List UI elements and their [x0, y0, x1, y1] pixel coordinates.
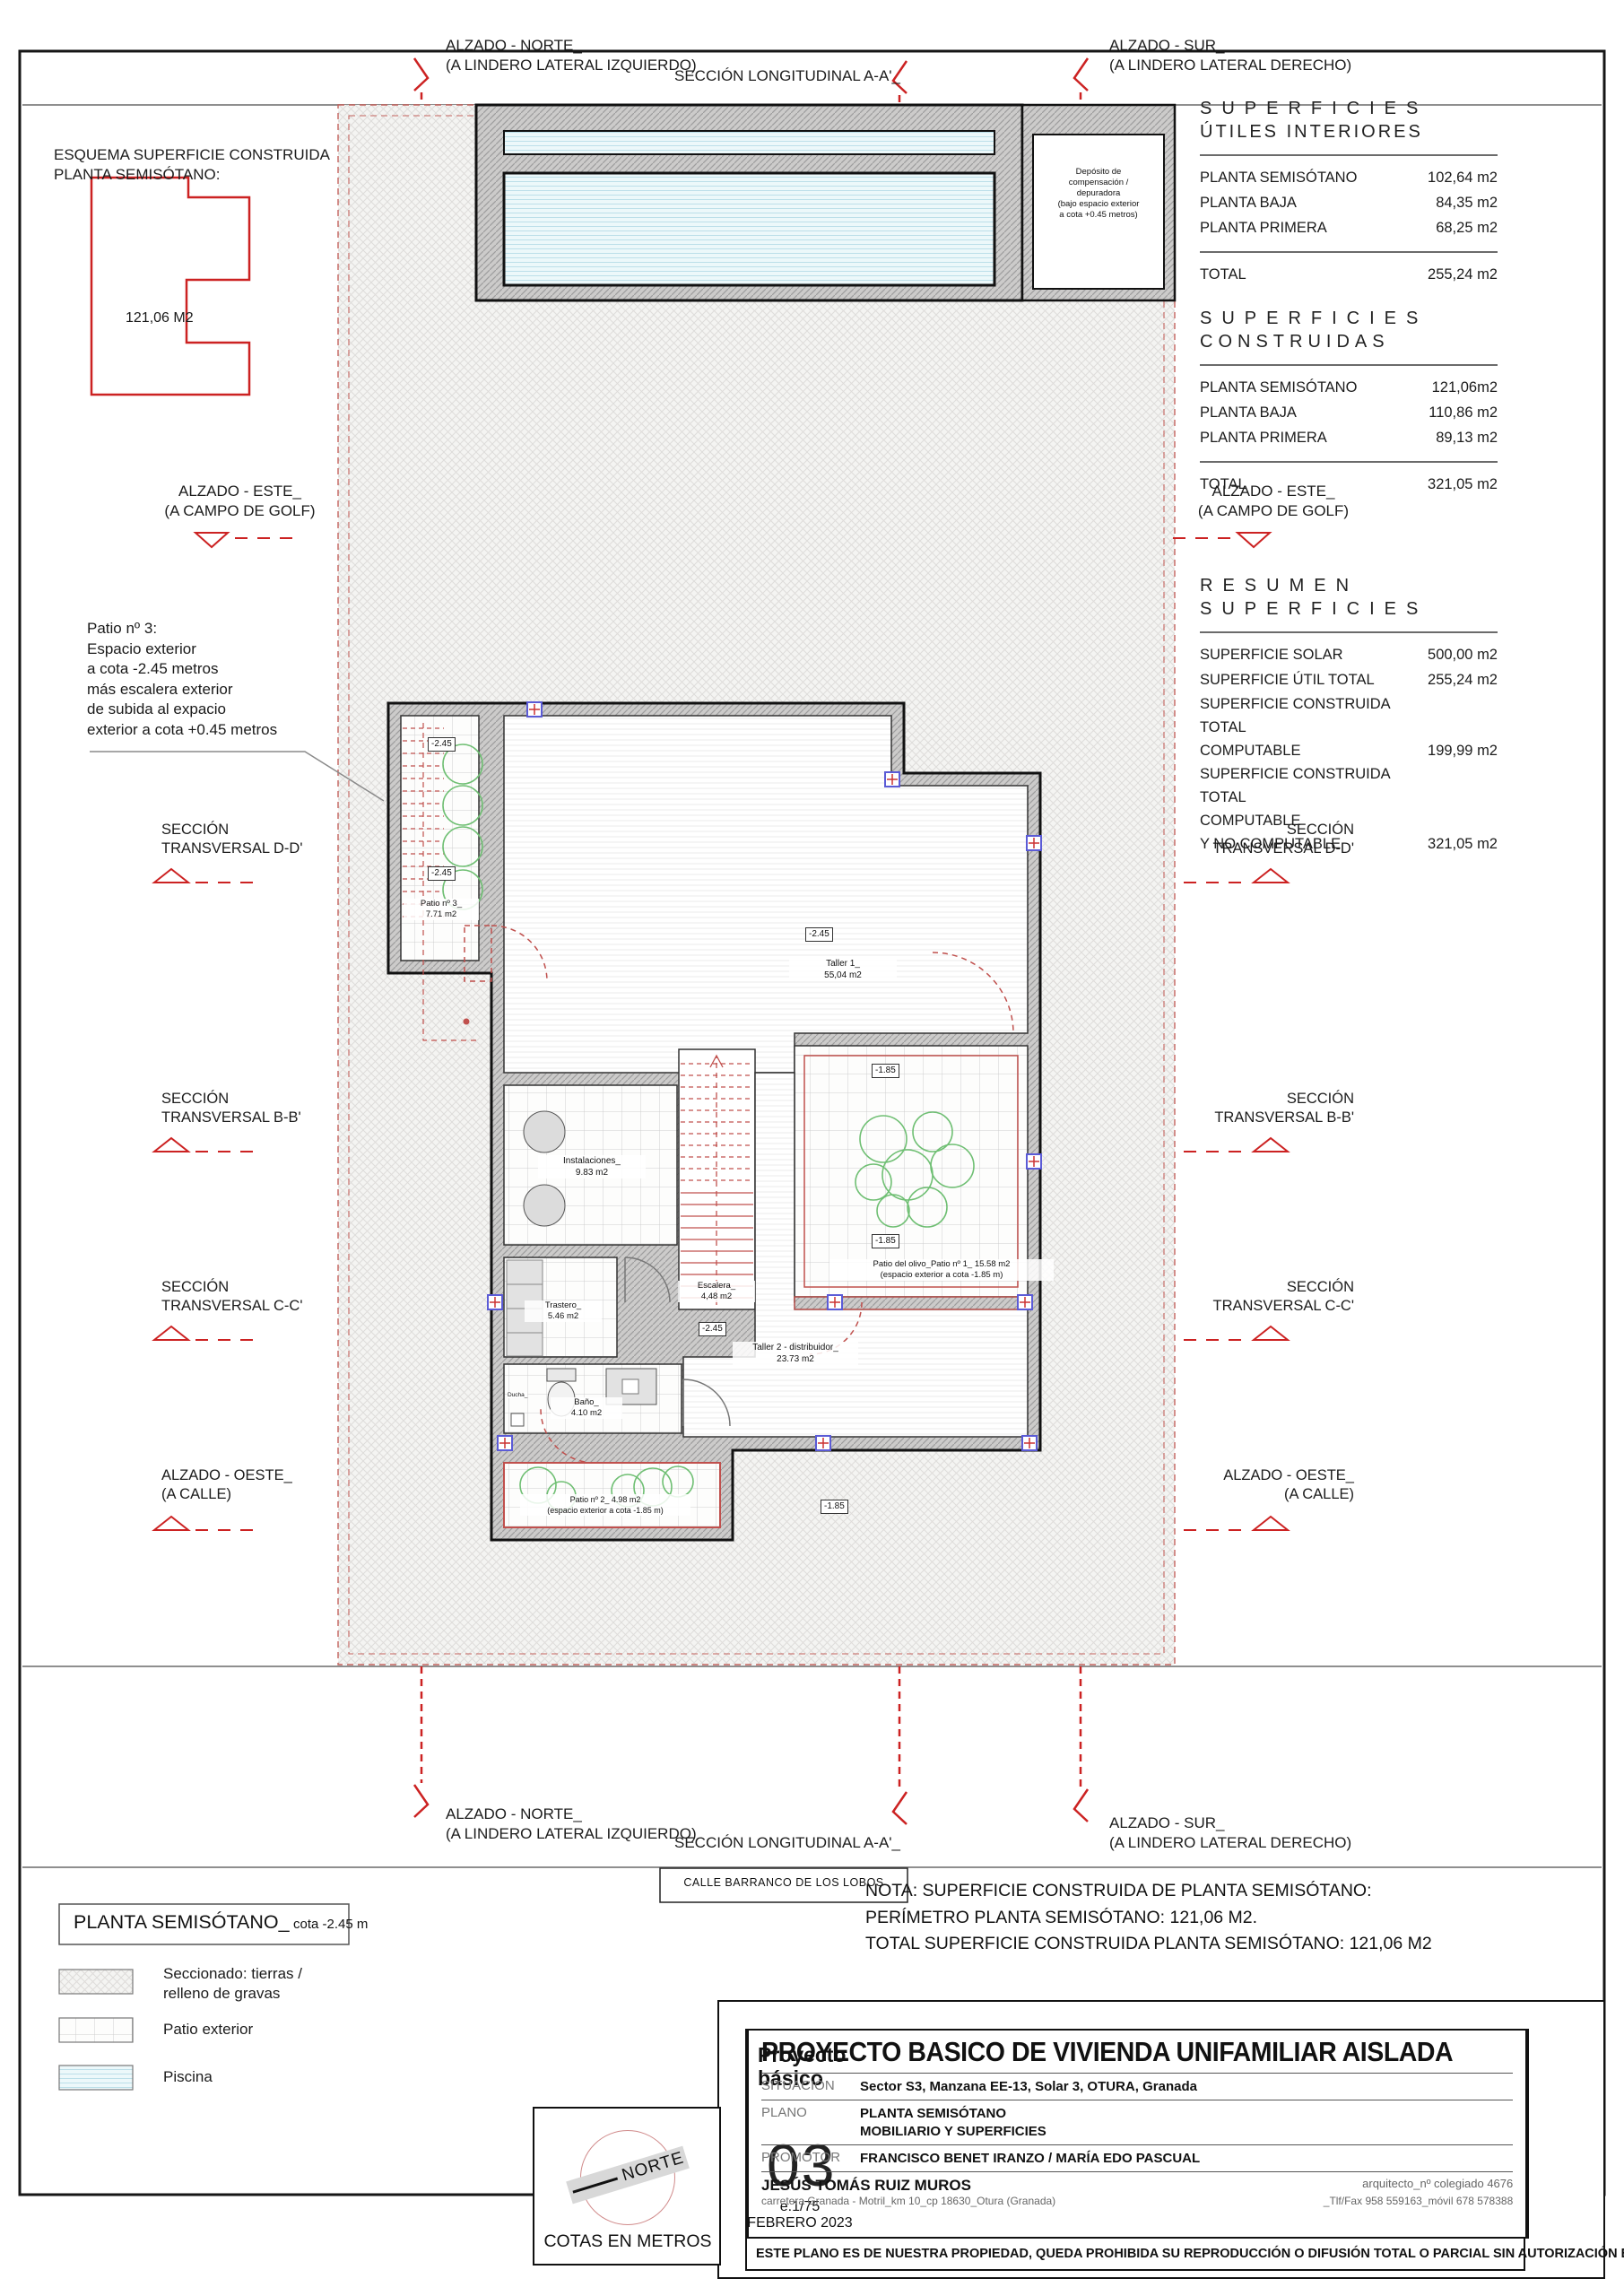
alzado-sur-line2: (A LINDERO LATERAL DERECHO) — [1109, 56, 1351, 75]
seccion-aa-label-bottom: SECCIÓN LONGITUDINAL A-A'_ — [674, 1833, 900, 1853]
legend-swatches — [59, 1970, 133, 2090]
room-patio3 — [401, 716, 479, 961]
copyright-strip: ESTE PLANO ES DE NUESTRA PROPIEDAD, QUED… — [745, 2239, 1525, 2271]
alzado-norte-line1: ALZADO - NORTE_ — [446, 36, 697, 56]
seccion-bb-label-left: SECCIÓN TRANSVERSAL B-B' — [161, 1090, 301, 1127]
logo-a-glyph: a — [1525, 2042, 1527, 2127]
nota: NOTA: SUPERFICIE CONSTRUIDA DE PLANTA SE… — [865, 1878, 1432, 1958]
alzado-sur-line1: ALZADO - SUR_ — [1109, 36, 1351, 56]
esquema-title: ESQUEMA SUPERFICIE CONSTRUIDA PLANTA SEM… — [54, 145, 330, 185]
tank-2 — [524, 1185, 565, 1226]
table2-title: SUPERFICIES — [1200, 307, 1498, 330]
rm-arquitectos-logo: a RM RUIZ MUROS arquitectos — [1525, 2031, 1527, 2237]
escalera-label: Escalera_ 4,48 m2 — [678, 1281, 755, 1302]
legend-title: PLANTA SEMISÓTANO_ cota -2.45 m — [74, 1911, 368, 1934]
shower-drain — [511, 1413, 524, 1426]
drawing-sheet: ALZADO - NORTE_ (A LINDERO LATERAL IZQUI… — [0, 0, 1624, 2296]
table-row: PLANTA PRIMERA68,25 m2 — [1200, 215, 1498, 240]
table-total-row: TOTAL255,24 m2 — [1200, 262, 1498, 287]
seccion-cc-label-right: SECCIÓN TRANSVERSAL C-C' — [1193, 1278, 1354, 1316]
table3-title: RESUMEN — [1200, 574, 1498, 597]
taller2-label: Taller 2 - distribuidor_ 23.73 m2 — [733, 1342, 858, 1365]
seccion-cc-label-left: SECCIÓN TRANSVERSAL C-C' — [161, 1278, 302, 1316]
swatch-seccionado — [59, 1970, 133, 1994]
deposito-label: Depósito de compensación / depuradora (b… — [1038, 167, 1159, 221]
level-tag: -1.85 — [872, 1064, 899, 1078]
tank-1 — [524, 1111, 565, 1152]
legend-item-seccionado: Seccionado: tierras / relleno de gravas — [163, 1964, 302, 2004]
level-tag: -1.85 — [821, 1500, 848, 1514]
sink-basin — [622, 1379, 638, 1394]
patio3-label: Patio nº 3_ 7.71 m2 — [404, 899, 479, 920]
table-resumen-superficies: RESUMEN SUPERFICIES SUPERFICIE SOLAR500,… — [1200, 574, 1498, 856]
table-row: PLANTA BAJA110,86 m2 — [1200, 400, 1498, 425]
swatch-patio-exterior — [59, 2018, 133, 2042]
trastero-label: Trastero_ 5.46 m2 — [525, 1300, 602, 1322]
table-total-row: TOTAL321,05 m2 — [1200, 472, 1498, 497]
table-superficies-construidas: SUPERFICIES CONSTRUIDAS PLANTA SEMISÓTAN… — [1200, 307, 1498, 497]
legend-item-patio-exterior: Patio exterior — [163, 2020, 253, 2039]
level-tag: -2.45 — [805, 927, 833, 942]
table-row: SUPERFICIE ÚTIL TOTAL255,24 m2 — [1200, 667, 1498, 692]
patio-olivo-label: Patio del olivo_Patio nº 1_ 15.58 m2 (es… — [829, 1259, 1054, 1281]
legend-item-piscina: Piscina — [163, 2067, 213, 2087]
seccion-aa-label-top: SECCIÓN LONGITUDINAL A-A'_ — [674, 66, 900, 86]
table-row: PLANTA SEMISÓTANO102,64 m2 — [1200, 165, 1498, 190]
cotas-label: COTAS EN METROS — [538, 2231, 717, 2252]
north-needle — [572, 2177, 618, 2193]
alzado-sur-label-bottom: ALZADO - SUR_ (A LINDERO LATERAL DERECHO… — [1109, 1813, 1351, 1853]
swatch-piscina — [59, 2066, 133, 2090]
esquema-area: 121,06 M2 — [126, 310, 194, 326]
promotor-row: PROMOTOR FRANCISCO BENET IRANZO / MARÍA … — [761, 2144, 1513, 2171]
patio2-label: Patio nº 2_ 4.98 m2 (espacio exterior a … — [520, 1494, 690, 1516]
level-tag: -2.45 — [428, 866, 456, 881]
instalaciones-label: Instalaciones_ 9.83 m2 — [538, 1155, 646, 1178]
architect-row: JESÚS TOMÁS RUIZ MUROS arquitecto_nº col… — [761, 2171, 1513, 2195]
seccion-bb-label-right: SECCIÓN TRANSVERSAL B-B' — [1193, 1090, 1354, 1127]
ducha-label: Ducha_ — [508, 1392, 527, 1398]
level-tag: -1.85 — [872, 1234, 899, 1248]
table-row: SUPERFICIE CONSTRUIDA TOTALCOMPUTABLE 19… — [1200, 692, 1498, 762]
level-tag: -2.45 — [699, 1322, 726, 1336]
architect-name: JESÚS TOMÁS RUIZ MUROS — [761, 2177, 971, 2195]
alzado-oeste-label-left: ALZADO - OESTE_ (A CALLE) — [161, 1466, 292, 1504]
taller1-label: Taller 1_ 55,04 m2 — [789, 958, 897, 981]
table-row: SUPERFICIE CONSTRUIDA TOTALCOMPUTABLEY N… — [1200, 762, 1498, 856]
table-row: PLANTA PRIMERA89,13 m2 — [1200, 425, 1498, 450]
toilet-tank — [547, 1369, 576, 1381]
table-superficies-utiles: SUPERFICIES ÚTILES INTERIORES PLANTA SEM… — [1200, 97, 1498, 287]
table-row: PLANTA SEMISÓTANO121,06m2 — [1200, 375, 1498, 400]
patio3-note: Patio nº 3: Espacio exterior a cota -2.4… — [87, 619, 277, 740]
titleblock: Proyecto básico 03 e.1/75 FEBRERO 2023 P… — [745, 2029, 1529, 2239]
alzado-norte-line2: (A LINDERO LATERAL IZQUIERDO) — [446, 56, 697, 75]
seccion-dd-label-left: SECCIÓN TRANSVERSAL D-D' — [161, 821, 302, 858]
alzado-sur-label-top: ALZADO - SUR_ (A LINDERO LATERAL DERECHO… — [1109, 36, 1351, 75]
table-row: SUPERFICIE SOLAR500,00 m2 — [1200, 642, 1498, 667]
level-tag: -2.45 — [428, 737, 456, 752]
north-compass-icon: NORTE — [580, 2130, 675, 2225]
address-row: carretera Granada - Motril_km 10_cp 1863… — [761, 2195, 1513, 2207]
table-row: PLANTA BAJA84,35 m2 — [1200, 190, 1498, 215]
alzado-este-label-left: ALZADO - ESTE_ (A CAMPO DE GOLF) — [143, 482, 336, 521]
project-title: PROYECTO BASICO DE VIVIENDA UNIFAMILIAR … — [761, 2031, 1453, 2068]
titleblock-middle: PROYECTO BASICO DE VIVIENDA UNIFAMILIAR … — [749, 2031, 1525, 2237]
alzado-norte-label-top: ALZADO - NORTE_ (A LINDERO LATERAL IZQUI… — [446, 36, 697, 75]
bano-label: Baño_ 4.10 m2 — [551, 1397, 622, 1419]
table1-title: SUPERFICIES — [1200, 97, 1498, 120]
pool-basin — [504, 173, 994, 285]
pool-skimmer — [504, 131, 994, 154]
architect-license: arquitecto_nº colegiado 4676 — [1362, 2177, 1513, 2195]
situacion-row: SITUACIÓN Sector S3, Manzana EE-13, Sola… — [761, 2073, 1513, 2100]
alzado-norte-label-bottom: ALZADO - NORTE_ (A LINDERO LATERAL IZQUI… — [446, 1805, 697, 1844]
alzado-oeste-label-right: ALZADO - OESTE_ (A CALLE) — [1193, 1466, 1354, 1504]
plano-row: PLANO PLANTA SEMISÓTANOMOBILIARIO Y SUPE… — [761, 2100, 1513, 2144]
